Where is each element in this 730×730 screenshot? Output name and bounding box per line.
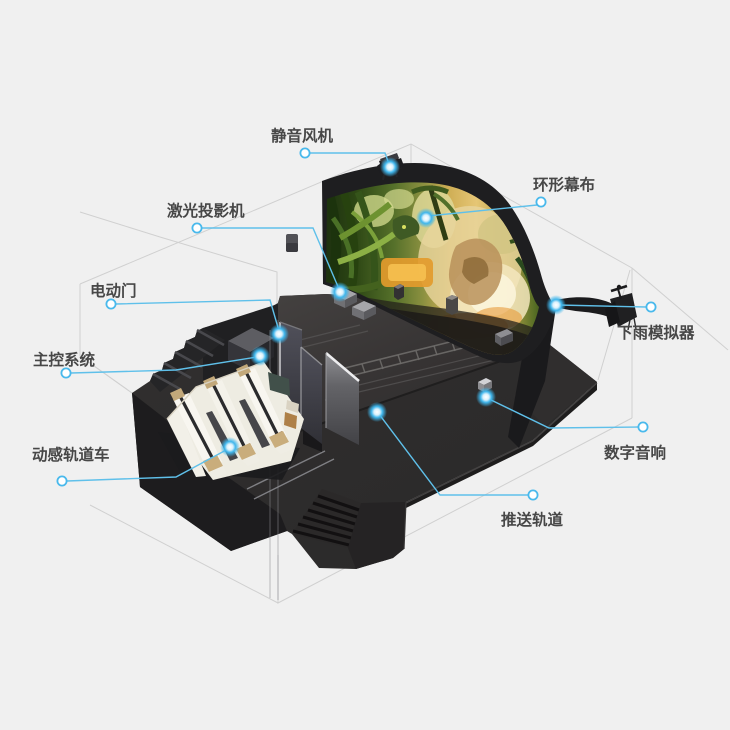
- svg-text:主控系统: 主控系统: [33, 350, 96, 369]
- svg-text:下雨模拟器: 下雨模拟器: [617, 323, 695, 342]
- svg-text:动感轨道车: 动感轨道车: [32, 445, 110, 464]
- svg-text:推送轨道: 推送轨道: [501, 510, 564, 529]
- svg-text:数字音响: 数字音响: [604, 443, 666, 462]
- svg-text:激光投影机: 激光投影机: [167, 201, 245, 220]
- svg-text:静音风机: 静音风机: [271, 126, 334, 145]
- svg-text:电动门: 电动门: [90, 281, 137, 300]
- svg-text:环形幕布: 环形幕布: [533, 175, 595, 194]
